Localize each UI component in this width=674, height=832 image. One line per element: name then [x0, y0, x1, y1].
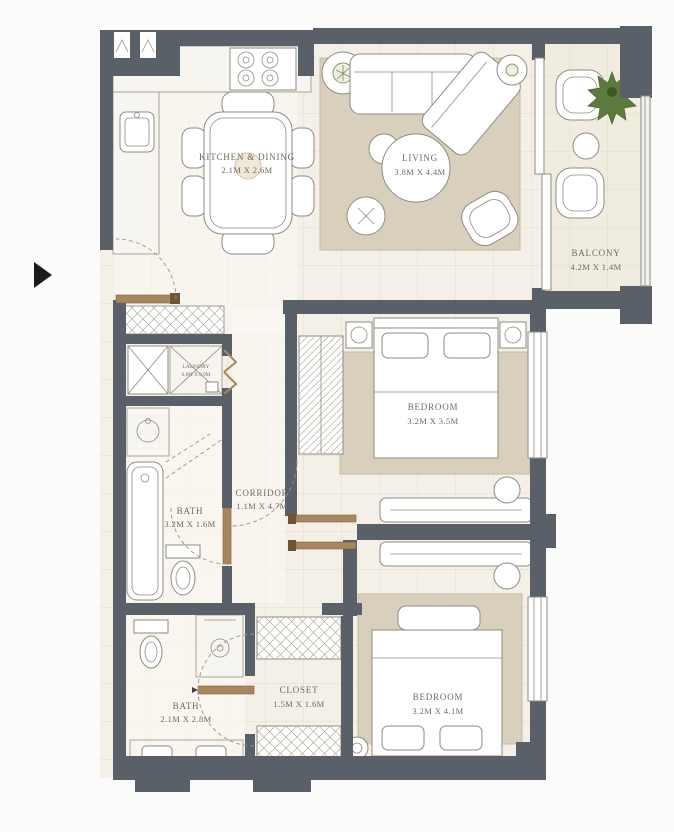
- floor-plan-page: KITCHEN & DINING 2.1M X 2.6M LIVING 3.8M…: [0, 0, 674, 832]
- svg-text:LIVING: LIVING: [402, 153, 438, 163]
- dining-chair: [182, 128, 206, 168]
- svg-text:LAUNDRY: LAUNDRY: [182, 364, 209, 370]
- svg-text:4.2M X 1.4M: 4.2M X 1.4M: [570, 262, 621, 272]
- pillow: [382, 726, 424, 750]
- svg-text:1.1M X 4.7M: 1.1M X 4.7M: [236, 501, 287, 511]
- shaft-niche: [114, 32, 130, 58]
- washer-icon: [206, 382, 218, 392]
- svg-text:3.2M X 1.6M: 3.2M X 1.6M: [164, 519, 215, 529]
- shaft-niche: [140, 32, 156, 58]
- dining-chair: [290, 176, 314, 216]
- svg-text:CORRIDOR: CORRIDOR: [236, 488, 289, 498]
- bed-headboard: [374, 318, 498, 328]
- svg-text:2.1M X 2.6M: 2.1M X 2.6M: [221, 165, 272, 175]
- bath1-door: [223, 508, 231, 564]
- toilet-icon: [140, 636, 162, 668]
- toilet-tank: [134, 620, 168, 633]
- svg-text:BEDROOM: BEDROOM: [413, 692, 464, 702]
- bed-bench: [398, 606, 480, 630]
- nightstand: [500, 322, 526, 348]
- pillow: [440, 726, 482, 750]
- desk-stool: [494, 477, 520, 503]
- svg-text:2.1M X 2.8M: 2.1M X 2.8M: [160, 714, 211, 724]
- bath2-door: [198, 686, 254, 694]
- entry-arrow-icon: [34, 262, 52, 288]
- pillow: [382, 333, 428, 358]
- balcony-table: [573, 133, 599, 159]
- dining-chair: [182, 176, 206, 216]
- svg-text:BATH: BATH: [177, 506, 204, 516]
- svg-text:3.2M X 4.1M: 3.2M X 4.1M: [412, 706, 463, 716]
- window: [528, 597, 547, 701]
- sliding-glass-door: [542, 174, 551, 290]
- balcony-railing: [641, 96, 650, 286]
- svg-text:BALCONY: BALCONY: [571, 248, 620, 258]
- nightstand: [346, 322, 372, 348]
- bedroom1-sliding-door: [296, 515, 356, 522]
- laundry-zone: [116, 306, 224, 394]
- vanity: [127, 408, 169, 456]
- svg-text:BEDROOM: BEDROOM: [408, 402, 459, 412]
- entry-door: [116, 295, 176, 303]
- floor-plan: KITCHEN & DINING 2.1M X 2.6M LIVING 3.8M…: [0, 0, 674, 832]
- svg-text:BATH: BATH: [173, 701, 200, 711]
- svg-text:KITCHEN & DINING: KITCHEN & DINING: [199, 152, 295, 162]
- toilet-tank: [166, 545, 200, 558]
- pillow: [444, 333, 490, 358]
- toilet-icon: [171, 561, 195, 595]
- plant-center: [607, 87, 617, 97]
- svg-text:CLOSET: CLOSET: [280, 685, 319, 695]
- corridor-floor-zone: [232, 310, 285, 603]
- svg-text:0.8M X 0.9M: 0.8M X 0.9M: [182, 373, 211, 378]
- svg-text:3.2M X 3.5M: 3.2M X 3.5M: [407, 416, 458, 426]
- desk-stool: [494, 563, 520, 589]
- window: [528, 332, 547, 458]
- dining-chair: [290, 128, 314, 168]
- sliding-glass-door: [535, 58, 544, 174]
- svg-text:3.8M X 4.4M: 3.8M X 4.4M: [394, 167, 445, 177]
- kitchen-dining-furniture: [113, 46, 314, 254]
- bedroom2-sliding-door: [296, 542, 356, 549]
- plant-icon: [506, 64, 518, 76]
- svg-text:1.5M X 1.6M: 1.5M X 1.6M: [273, 699, 324, 709]
